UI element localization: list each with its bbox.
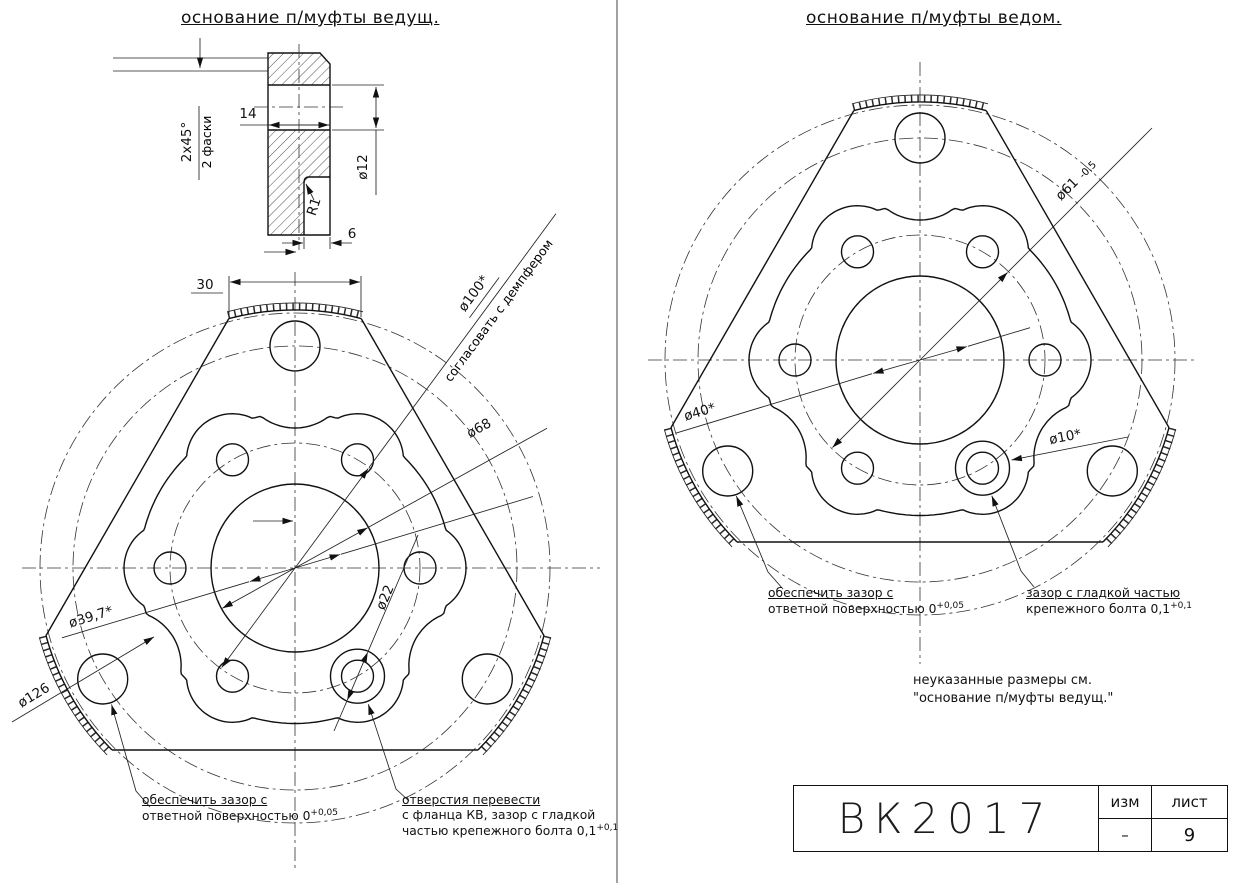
- note-line: крепежного болта 0,1: [1026, 602, 1170, 616]
- rev-value: –: [1099, 819, 1152, 851]
- dim-flange-126: ø126: [15, 680, 52, 711]
- dim-chamfer-qty: 2 фаски: [199, 116, 214, 169]
- dim-bolt-circle-61: ø61: [1053, 175, 1082, 204]
- note-line: неуказанные размеры см.: [913, 672, 1113, 690]
- note-line: обеспечить зазор с: [768, 586, 893, 600]
- drawing-canvas: 2x45° 2 фаски 14 ø12 R1 6: [0, 0, 1248, 883]
- note-line: с фланца КВ, зазор с гладкой: [402, 808, 595, 822]
- right-note-bolt: зазор с гладкой частью крепежного болта …: [1026, 586, 1192, 617]
- left-view: [22, 272, 600, 868]
- title-block-col-rev: изм: [1099, 786, 1152, 818]
- note-line: отверстия перевести: [402, 793, 540, 807]
- note-line: ответной поверхностью 0: [768, 602, 936, 616]
- dim-bore-68: ø68: [464, 415, 494, 441]
- left-note-holes: отверстия перевести с фланца КВ, зазор с…: [402, 793, 618, 839]
- section-view: 2x45° 2 фаски 14 ø12 R1 6: [113, 38, 384, 252]
- right-view: [648, 62, 1196, 664]
- note-line: "основание п/муфты ведущ.": [913, 690, 1113, 708]
- dim-width-14: 14: [239, 106, 256, 122]
- dim-bolt-circle-61-tol: -0,5: [1077, 159, 1099, 181]
- note-line: обеспечить зазор с: [142, 793, 267, 807]
- dim-fit-39-7: ø39,7*: [67, 603, 115, 631]
- left-view-title: основание п/муфты ведущ.: [181, 8, 439, 28]
- dim-hole-10: ø10*: [1048, 426, 1083, 448]
- note-line: зазор с гладкой частью: [1026, 586, 1180, 600]
- note-line: ответной поверхностью 0: [142, 809, 310, 823]
- right-view-dimensions: ø61 -0,5 ø40* ø10*: [676, 128, 1152, 589]
- dim-bore-12: ø12: [355, 154, 371, 179]
- dim-bolt-circle-note: согласовать с демпфером: [441, 236, 556, 384]
- document-number: ВК2017: [794, 786, 1099, 851]
- tolerance: +0,1: [1170, 601, 1192, 611]
- tolerance: +0,05: [936, 601, 964, 611]
- drawing-page: 2x45° 2 фаски 14 ø12 R1 6: [0, 0, 1248, 883]
- right-note-clearance: обеспечить зазор с ответной поверхностью…: [768, 586, 964, 617]
- dim-fit-40: ø40*: [682, 400, 718, 425]
- dim-radius-r1: R1: [304, 196, 325, 218]
- note-line: частью крепежного болта 0,1: [402, 824, 596, 838]
- right-view-title: основание п/муфты ведом.: [806, 8, 1062, 28]
- title-block: ВК2017 изм лист – 9: [793, 785, 1228, 852]
- reference-note: неуказанные размеры см. "основание п/муф…: [913, 672, 1113, 707]
- title-block-col-sheet: лист: [1152, 786, 1227, 818]
- sheet-number: 9: [1152, 819, 1227, 851]
- tolerance: +0,05: [310, 808, 338, 818]
- left-note-clearance: обеспечить зазор с ответной поверхностью…: [142, 793, 338, 824]
- dim-slot-6: 6: [348, 226, 357, 242]
- tolerance: +0,1: [596, 823, 618, 833]
- dim-flat-30: 30: [196, 277, 213, 293]
- dim-chamfer: 2x45°: [179, 122, 195, 163]
